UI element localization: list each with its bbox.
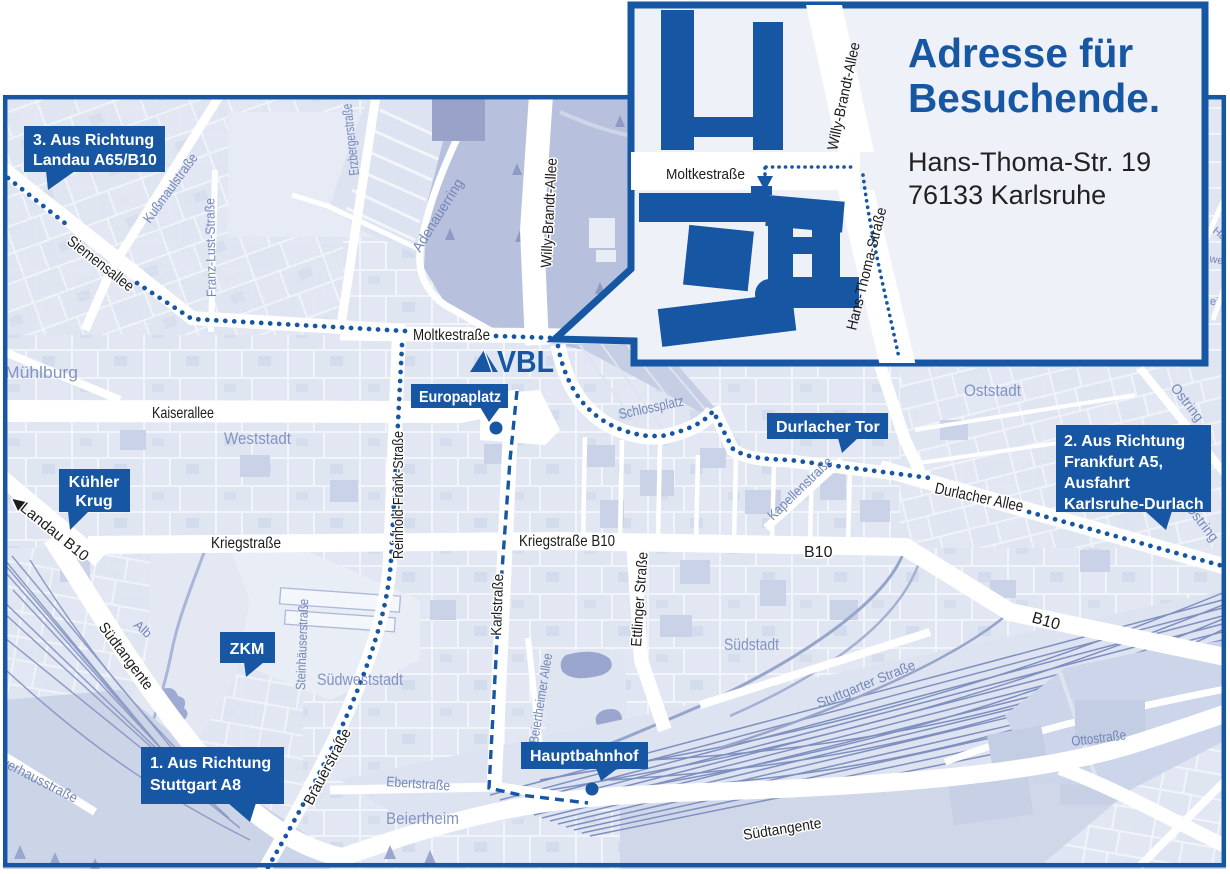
- svg-text:Kriegstraße: Kriegstraße: [211, 535, 281, 552]
- svg-text:Moltkestraße: Moltkestraße: [413, 327, 490, 344]
- svg-text:Kühler: Kühler: [69, 474, 120, 491]
- svg-text:Weststadt: Weststadt: [224, 429, 291, 448]
- svg-text:Karlsruhe-Durlach: Karlsruhe-Durlach: [1064, 496, 1204, 513]
- svg-text:Südstadt: Südstadt: [724, 635, 779, 654]
- svg-text:Kriegstraße B10: Kriegstraße B10: [519, 533, 615, 550]
- svg-text:Hans-Thoma-Str. 19: Hans-Thoma-Str. 19: [908, 147, 1151, 177]
- svg-text:Landau A65/B10: Landau A65/B10: [33, 152, 157, 169]
- svg-text:Stuttgart A8: Stuttgart A8: [150, 777, 241, 794]
- svg-text:Franz-Lust-Straße: Franz-Lust-Straße: [202, 198, 219, 297]
- svg-text:76133 Karlsruhe: 76133 Karlsruhe: [908, 180, 1106, 210]
- svg-text:1. Aus Richtung: 1. Aus Richtung: [150, 755, 271, 772]
- svg-text:B10: B10: [804, 544, 833, 561]
- svg-text:Reinhold-Frank-Straße: Reinhold-Frank-Straße: [390, 431, 407, 559]
- svg-text:Karlstraße: Karlstraße: [488, 574, 507, 637]
- svg-text:VBL: VBL: [497, 344, 554, 379]
- svg-text:Europaplatz: Europaplatz: [419, 389, 501, 406]
- svg-text:Adresse für: Adresse für: [908, 30, 1133, 76]
- svg-text:Mühlburg: Mühlburg: [5, 363, 78, 382]
- svg-text:Oststadt: Oststadt: [964, 381, 1021, 400]
- svg-text:Beiertheim: Beiertheim: [386, 809, 459, 828]
- svg-text:Kaiserallee: Kaiserallee: [152, 405, 214, 422]
- svg-text:2. Aus Richtung: 2. Aus Richtung: [1064, 433, 1185, 450]
- svg-text:Krug: Krug: [75, 493, 112, 510]
- svg-text:Moltkestraße: Moltkestraße: [666, 166, 745, 183]
- svg-text:Besuchende.: Besuchende.: [908, 75, 1160, 121]
- svg-text:Frankfurt A5,: Frankfurt A5,: [1064, 454, 1163, 471]
- svg-text:Hauptbahnhof: Hauptbahnhof: [530, 748, 639, 765]
- svg-text:Ausfahrt: Ausfahrt: [1064, 475, 1130, 492]
- svg-text:Durlacher Tor: Durlacher Tor: [776, 419, 880, 436]
- svg-text:Südweststadt: Südweststadt: [317, 670, 403, 689]
- svg-text:ZKM: ZKM: [230, 641, 265, 658]
- svg-text:Steinhäuserstraße: Steinhäuserstraße: [293, 599, 311, 690]
- svg-text:3. Aus Richtung: 3. Aus Richtung: [33, 132, 154, 149]
